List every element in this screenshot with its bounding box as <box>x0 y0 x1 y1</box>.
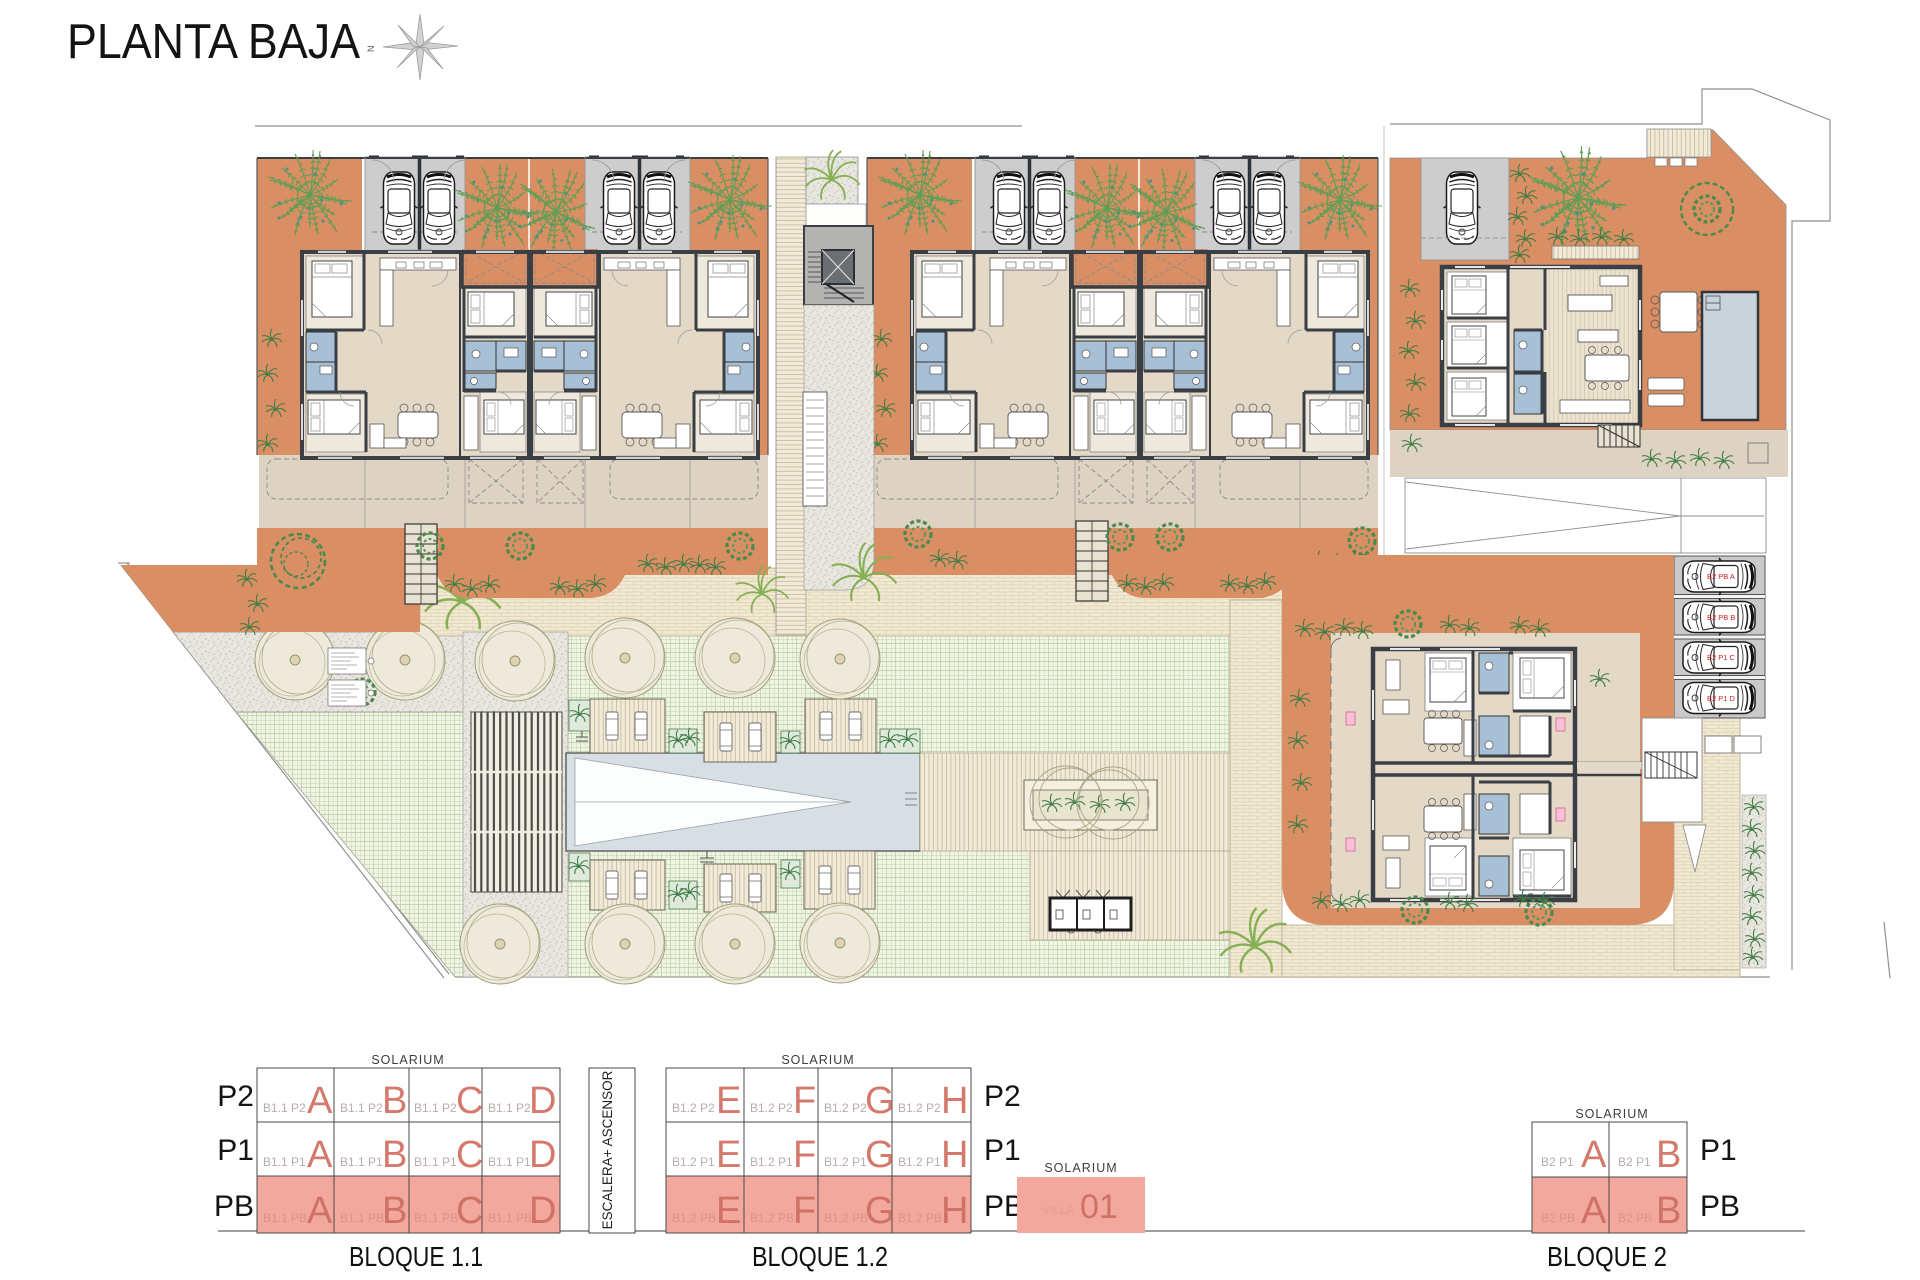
svg-text:B1.1 PB: B1.1 PB <box>263 1211 307 1225</box>
svg-text:ESCALERA+ ASCENSOR: ESCALERA+ ASCENSOR <box>600 1070 615 1229</box>
svg-text:P1: P1 <box>217 1134 254 1167</box>
svg-text:B: B <box>382 1080 407 1122</box>
svg-text:F: F <box>793 1080 816 1122</box>
svg-text:A: A <box>1581 1190 1607 1232</box>
svg-text:VILLA: VILLA <box>1042 1203 1075 1217</box>
svg-text:B: B <box>382 1190 407 1232</box>
svg-text:B1.1 PB: B1.1 PB <box>414 1211 458 1225</box>
svg-text:BLOQUE 2: BLOQUE 2 <box>1547 1241 1667 1272</box>
svg-text:SOLARIUM: SOLARIUM <box>1575 1107 1648 1121</box>
svg-text:P2: P2 <box>217 1080 254 1113</box>
svg-text:P1: P1 <box>984 1134 1021 1167</box>
svg-text:BLOQUE 1.2: BLOQUE 1.2 <box>752 1241 888 1272</box>
svg-text:PB: PB <box>214 1190 254 1223</box>
svg-text:B1.2 PB: B1.2 PB <box>824 1211 868 1225</box>
svg-text:G: G <box>865 1190 895 1232</box>
svg-text:B2 PB A: B2 PB A <box>1707 572 1735 581</box>
svg-text:B1.1 P1: B1.1 P1 <box>414 1155 457 1169</box>
svg-text:F: F <box>793 1190 816 1232</box>
svg-text:B2 P1: B2 P1 <box>1541 1155 1574 1169</box>
svg-text:B2 P1: B2 P1 <box>1618 1155 1651 1169</box>
svg-text:B1.1 PB: B1.1 PB <box>488 1211 532 1225</box>
svg-text:PLANTA BAJA: PLANTA BAJA <box>67 15 360 69</box>
svg-text:B1.1 P2: B1.1 P2 <box>488 1101 531 1115</box>
svg-text:C: C <box>456 1190 483 1232</box>
svg-text:B1.2 P1: B1.2 P1 <box>824 1155 867 1169</box>
svg-text:C: C <box>456 1080 483 1122</box>
svg-text:A: A <box>307 1134 333 1176</box>
svg-text:B2 P1 D: B2 P1 D <box>1707 694 1736 703</box>
svg-text:B: B <box>1656 1134 1681 1176</box>
svg-text:P1: P1 <box>1700 1134 1737 1167</box>
svg-text:B2 P1 C: B2 P1 C <box>1707 653 1736 662</box>
svg-text:B: B <box>1656 1190 1681 1232</box>
svg-text:G: G <box>865 1080 895 1122</box>
svg-text:H: H <box>941 1080 968 1122</box>
svg-text:B1.1 P1: B1.1 P1 <box>340 1155 383 1169</box>
svg-text:H: H <box>941 1134 968 1176</box>
svg-text:B2 PB B: B2 PB B <box>1707 613 1735 622</box>
svg-text:01: 01 <box>1080 1188 1118 1226</box>
svg-text:SOLARIUM: SOLARIUM <box>371 1053 444 1067</box>
svg-text:B1.2 P1: B1.2 P1 <box>672 1155 715 1169</box>
svg-text:A: A <box>1581 1134 1607 1176</box>
svg-text:D: D <box>529 1190 556 1232</box>
svg-text:A: A <box>307 1190 333 1232</box>
svg-text:B1.1 P2: B1.1 P2 <box>263 1101 306 1115</box>
svg-text:B1.2 PB: B1.2 PB <box>672 1211 716 1225</box>
svg-text:PB: PB <box>1700 1190 1740 1223</box>
svg-text:D: D <box>529 1134 556 1176</box>
svg-text:B1.2 P2: B1.2 P2 <box>672 1101 715 1115</box>
svg-text:H: H <box>941 1190 968 1232</box>
svg-text:B1.2 P1: B1.2 P1 <box>898 1155 941 1169</box>
svg-text:B1.1 P1: B1.1 P1 <box>488 1155 531 1169</box>
svg-text:F: F <box>793 1134 816 1176</box>
svg-text:B1.2 PB: B1.2 PB <box>750 1211 794 1225</box>
svg-text:G: G <box>865 1134 895 1176</box>
svg-text:E: E <box>716 1190 741 1232</box>
svg-text:B1.2 P2: B1.2 P2 <box>750 1101 793 1115</box>
svg-text:E: E <box>716 1134 741 1176</box>
svg-text:D: D <box>529 1080 556 1122</box>
svg-text:A: A <box>307 1080 333 1122</box>
svg-text:E: E <box>716 1080 741 1122</box>
svg-text:P2: P2 <box>984 1080 1021 1113</box>
svg-text:B1.2 P2: B1.2 P2 <box>898 1101 941 1115</box>
svg-text:B1.2 P1: B1.2 P1 <box>750 1155 793 1169</box>
svg-text:B1.2 P2: B1.2 P2 <box>824 1101 867 1115</box>
svg-text:B1.1 PB: B1.1 PB <box>340 1211 384 1225</box>
svg-text:SOLARIUM: SOLARIUM <box>781 1053 854 1067</box>
svg-text:C: C <box>456 1134 483 1176</box>
svg-text:SOLARIUM: SOLARIUM <box>1044 1161 1117 1175</box>
svg-text:B1.2 PB: B1.2 PB <box>898 1211 942 1225</box>
svg-text:B1.1 P2: B1.1 P2 <box>414 1101 457 1115</box>
svg-text:B2 PB: B2 PB <box>1541 1211 1575 1225</box>
svg-text:B: B <box>382 1134 407 1176</box>
svg-text:B1.1 P2: B1.1 P2 <box>340 1101 383 1115</box>
svg-text:B1.1 P1: B1.1 P1 <box>263 1155 306 1169</box>
svg-text:BLOQUE 1.1: BLOQUE 1.1 <box>349 1241 483 1272</box>
svg-text:N: N <box>366 46 376 53</box>
svg-text:B2 PB: B2 PB <box>1618 1211 1652 1225</box>
